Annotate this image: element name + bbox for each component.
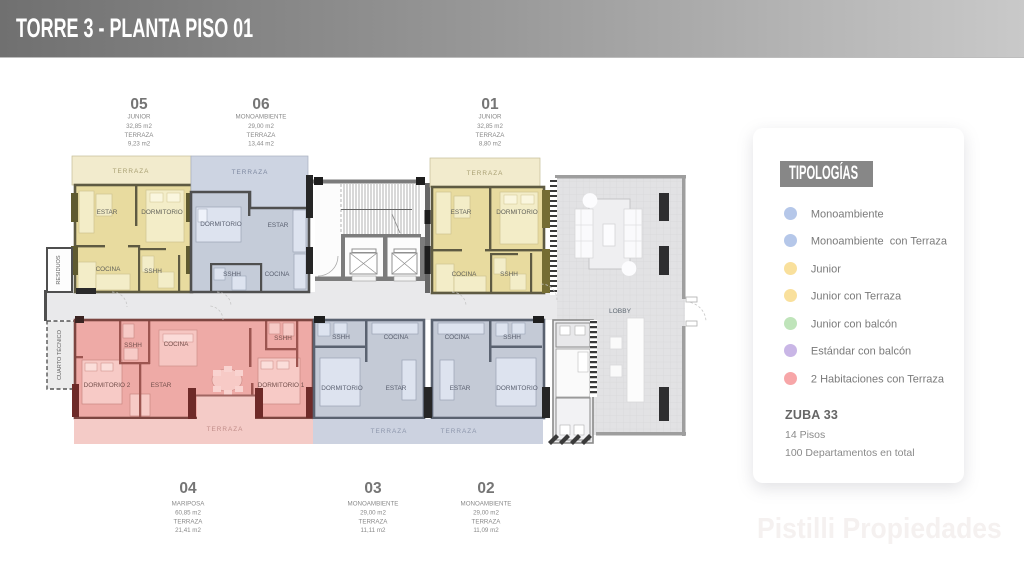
svg-text:TERRAZA: TERRAZA	[472, 519, 502, 526]
svg-text:DORMITORIO: DORMITORIO	[496, 209, 537, 216]
svg-text:11,11 m2: 11,11 m2	[361, 527, 386, 534]
svg-text:ESTAR: ESTAR	[386, 385, 407, 392]
svg-text:COCINA: COCINA	[164, 341, 190, 348]
svg-text:SSHH: SSHH	[223, 271, 241, 278]
svg-text:ESTAR: ESTAR	[451, 209, 472, 216]
svg-text:TERRAZA: TERRAZA	[441, 428, 478, 435]
svg-text:SSHH: SSHH	[274, 335, 292, 342]
svg-text:11,09 m2: 11,09 m2	[473, 527, 499, 534]
svg-text:TERRAZA: TERRAZA	[247, 132, 277, 139]
svg-text:02: 02	[477, 480, 494, 497]
svg-text:SSHH: SSHH	[332, 334, 350, 341]
svg-text:SSHH: SSHH	[124, 342, 142, 349]
svg-text:05: 05	[130, 96, 148, 113]
svg-text:TERRAZA: TERRAZA	[232, 169, 269, 176]
svg-text:DORMITORIO 2: DORMITORIO 2	[84, 382, 131, 389]
svg-text:CUARTO TÉCNICO: CUARTO TÉCNICO	[56, 329, 63, 380]
svg-text:ESTAR: ESTAR	[97, 209, 118, 216]
svg-text:9,23 m2: 9,23 m2	[128, 141, 151, 148]
svg-text:COCINA: COCINA	[384, 334, 410, 341]
svg-text:DORMITORIO: DORMITORIO	[141, 209, 182, 216]
svg-text:TERRAZA: TERRAZA	[467, 170, 504, 177]
svg-text:ESTAR: ESTAR	[268, 222, 289, 229]
svg-text:32,85 m2: 32,85 m2	[477, 123, 503, 130]
svg-text:06: 06	[252, 96, 270, 113]
svg-text:JUNIOR: JUNIOR	[127, 114, 151, 121]
svg-text:TERRAZA: TERRAZA	[476, 132, 506, 139]
svg-text:13,44 m2: 13,44 m2	[248, 141, 274, 148]
svg-text:TERRAZA: TERRAZA	[174, 519, 204, 526]
svg-text:03: 03	[364, 480, 382, 497]
svg-text:COCINA: COCINA	[96, 266, 122, 273]
svg-text:RESIDUOS: RESIDUOS	[56, 255, 62, 284]
svg-text:ESTAR: ESTAR	[450, 385, 471, 392]
svg-text:21,41 m2: 21,41 m2	[175, 527, 201, 534]
svg-text:SSHH: SSHH	[500, 271, 518, 278]
svg-text:MONOAMBIENTE: MONOAMBIENTE	[348, 501, 399, 508]
svg-text:JUNIOR: JUNIOR	[478, 114, 502, 121]
svg-text:DORMITORIO: DORMITORIO	[496, 385, 537, 392]
svg-text:32,85 m2: 32,85 m2	[126, 123, 152, 130]
svg-text:SSHH: SSHH	[503, 334, 521, 341]
svg-text:29,00 m2: 29,00 m2	[473, 510, 499, 517]
svg-text:TERRAZA: TERRAZA	[371, 428, 408, 435]
svg-text:DORMITORIO 1: DORMITORIO 1	[258, 382, 305, 389]
svg-text:MONOAMBIENTE: MONOAMBIENTE	[236, 114, 287, 121]
svg-text:COCINA: COCINA	[445, 334, 471, 341]
svg-text:04: 04	[179, 480, 197, 497]
svg-text:29,00 m2: 29,00 m2	[248, 123, 274, 130]
svg-text:TERRAZA: TERRAZA	[113, 168, 150, 175]
svg-text:DORMITORIO: DORMITORIO	[200, 221, 241, 228]
svg-text:DORMITORIO: DORMITORIO	[321, 385, 362, 392]
svg-text:LOBBY: LOBBY	[609, 308, 632, 315]
svg-text:ESTAR: ESTAR	[151, 382, 172, 389]
svg-text:SSHH: SSHH	[144, 268, 162, 275]
svg-text:8,80 m2: 8,80 m2	[479, 141, 502, 148]
svg-text:29,00 m2: 29,00 m2	[360, 510, 386, 517]
svg-text:01: 01	[481, 96, 499, 113]
svg-text:MONOAMBIENTE: MONOAMBIENTE	[461, 501, 512, 508]
svg-text:TERRAZA: TERRAZA	[359, 519, 389, 526]
svg-text:MARIPOSA: MARIPOSA	[172, 501, 206, 508]
svg-text:TERRAZA: TERRAZA	[207, 426, 244, 433]
svg-text:COCINA: COCINA	[452, 271, 478, 278]
svg-text:TERRAZA: TERRAZA	[125, 132, 155, 139]
svg-text:COCINA: COCINA	[265, 271, 291, 278]
svg-text:60,85 m2: 60,85 m2	[175, 510, 201, 517]
